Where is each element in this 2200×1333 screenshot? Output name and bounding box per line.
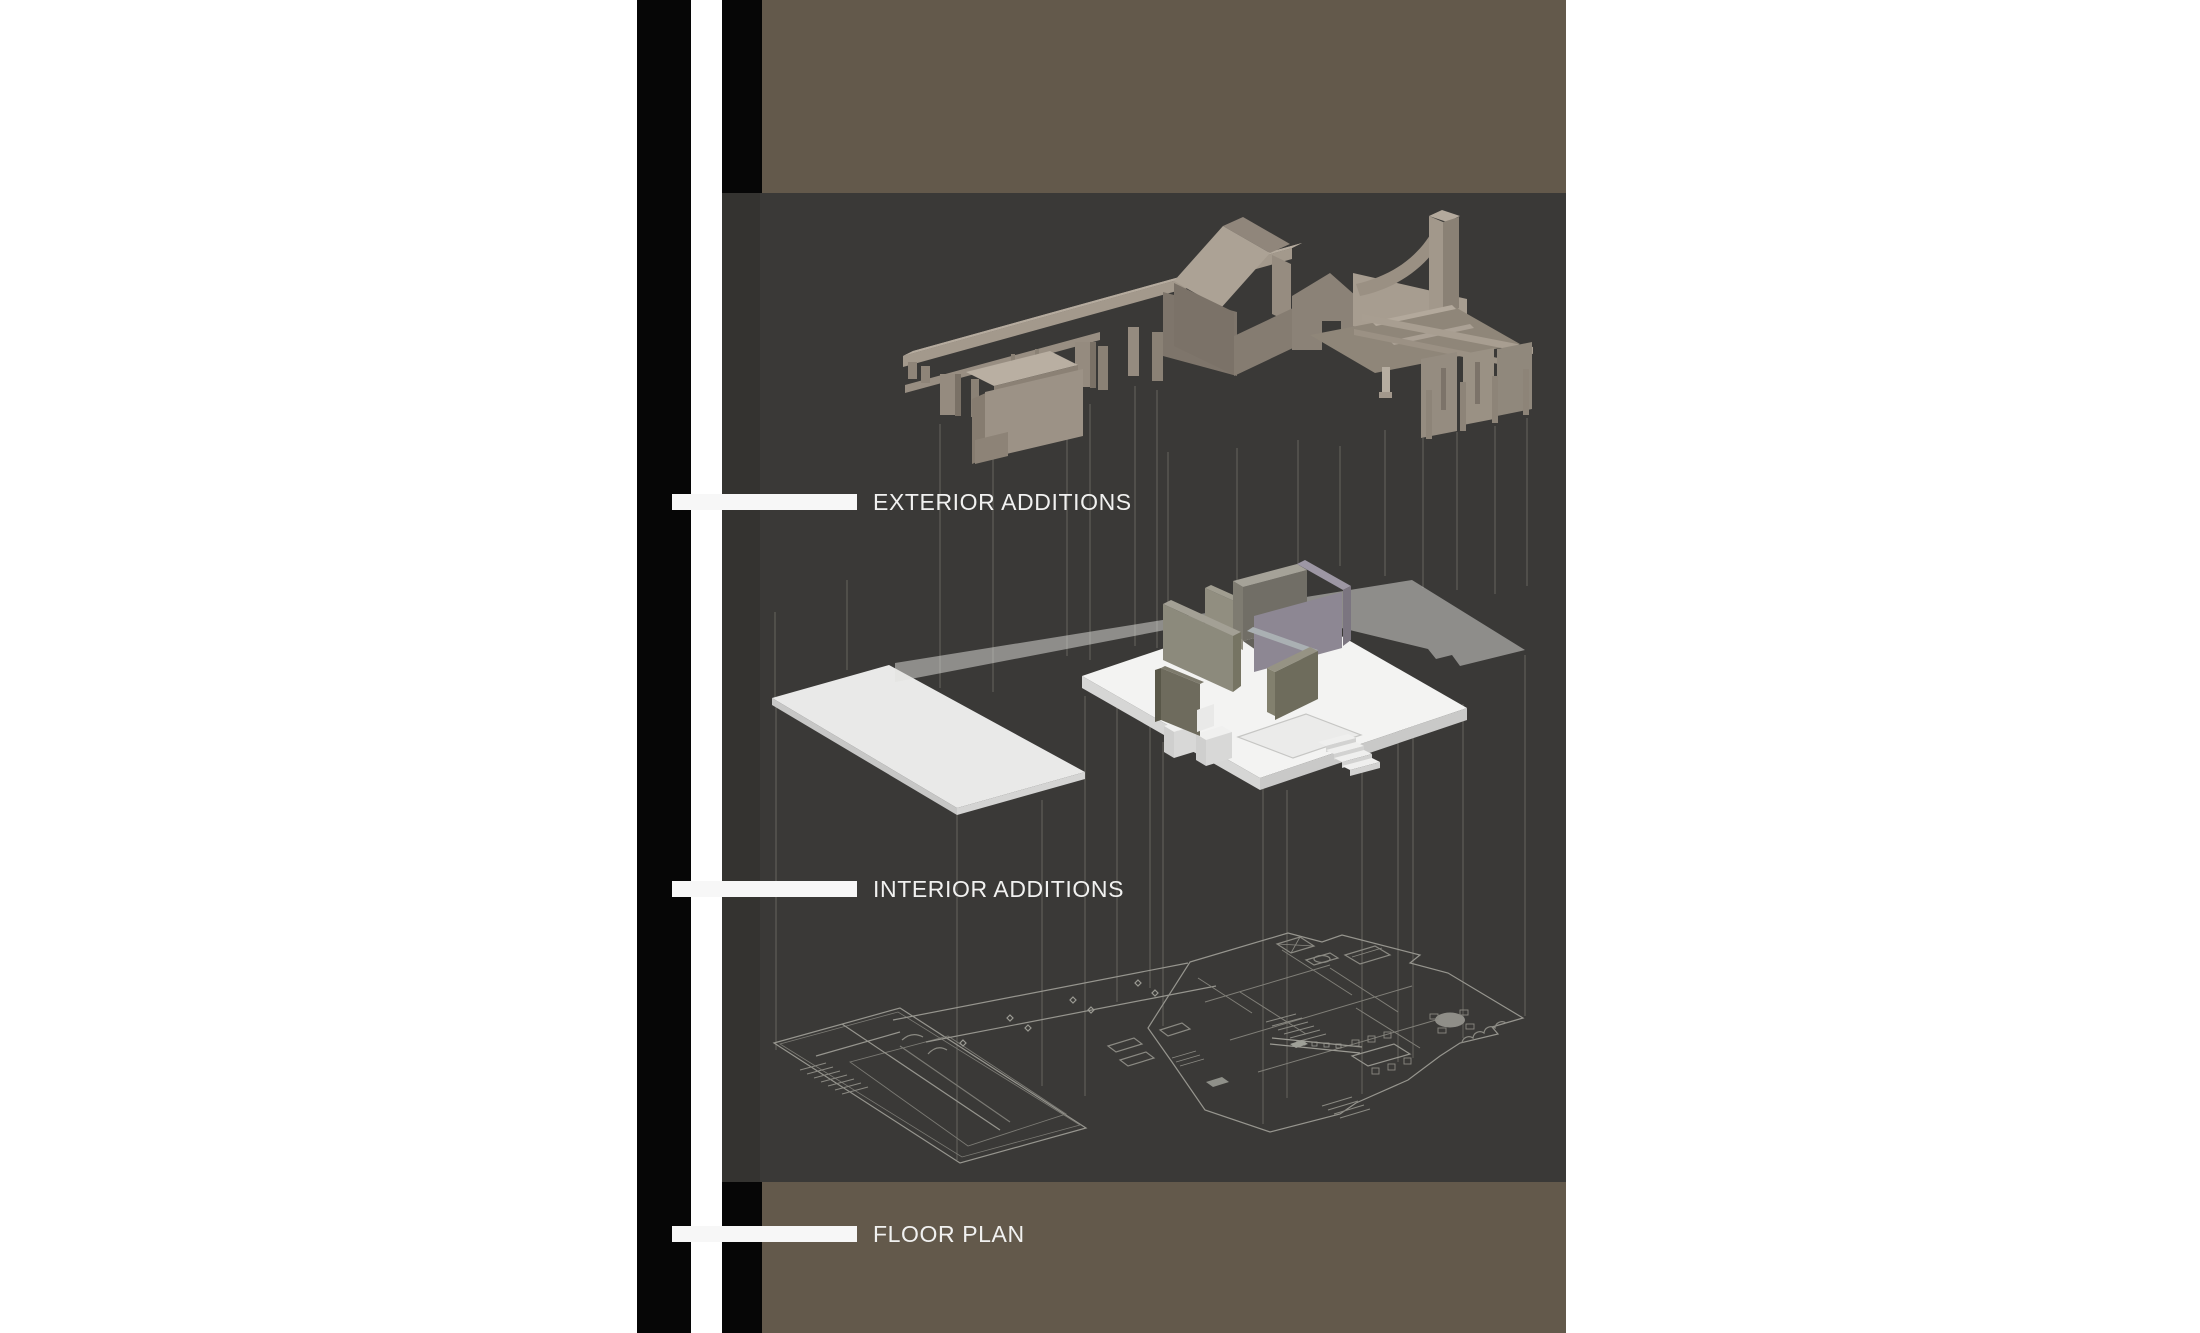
- exterior-tick-bar: [672, 494, 857, 510]
- annotation-exterior: EXTERIOR ADDITIONS: [672, 494, 1132, 510]
- annotation-floor-plan: FLOOR PLAN: [672, 1226, 1025, 1242]
- floor-plan-tick-bar: [672, 1226, 857, 1242]
- interior-additions-model: [772, 560, 1525, 815]
- exploded-axon-diagram: [0, 0, 2200, 1333]
- poster-page: { "annotations": { "exterior": { "label"…: [0, 0, 2200, 1333]
- annotation-interior: INTERIOR ADDITIONS: [672, 881, 1124, 897]
- floor-plan-label: FLOOR PLAN: [873, 1226, 1025, 1242]
- interior-tick-bar: [672, 881, 857, 897]
- floor-plan-drawing: [774, 933, 1523, 1163]
- exterior-label: EXTERIOR ADDITIONS: [873, 494, 1132, 510]
- exterior-additions-model: [903, 210, 1533, 464]
- interior-label: INTERIOR ADDITIONS: [873, 881, 1124, 897]
